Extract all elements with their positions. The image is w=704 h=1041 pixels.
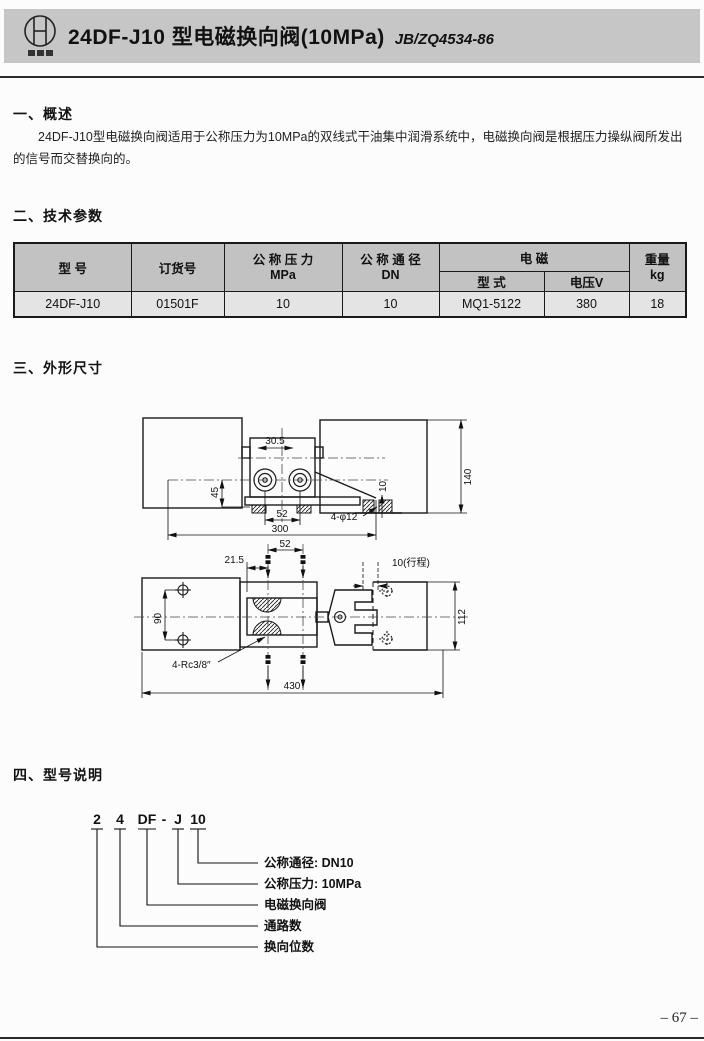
cell-solenoid-type: MQ1-5122 xyxy=(439,292,544,318)
front-dim-30-5: 30.5 xyxy=(265,436,285,447)
code-label-pressure: 公称压力: 10MPa xyxy=(264,876,362,891)
section-heading-parameters: 二、技术参数 xyxy=(13,206,103,226)
col-header-model: 型 号 xyxy=(14,243,131,292)
cell-pressure: 10 xyxy=(224,292,342,318)
header-rule xyxy=(0,76,704,78)
col-header-solenoid-type: 型 式 xyxy=(439,272,544,292)
section-heading-overview: 一、概述 xyxy=(13,104,73,124)
col-header-weight: 重量 kg xyxy=(629,243,686,292)
top-dim-430: 430 xyxy=(284,681,301,692)
code-label-valve-type: 电磁换向阀 xyxy=(264,897,327,912)
page-title: 24DF-J10 型电磁换向阀(10MPa) xyxy=(68,26,385,49)
code-label-positions: 换向位数 xyxy=(264,939,315,954)
top-thread-callout: 4-Rc3/8″ xyxy=(172,660,211,671)
col-header-solenoid: 电 磁 xyxy=(439,243,629,272)
front-dim-45: 45 xyxy=(210,486,221,498)
page-number: – 67 – xyxy=(661,1010,699,1027)
code-seg-ways: 4 xyxy=(116,811,124,827)
company-logo-icon xyxy=(18,12,62,60)
code-seg-type: DF xyxy=(138,811,157,827)
cell-voltage: 380 xyxy=(544,292,629,318)
parameters-table: 型 号 订货号 公 称 压 力 MPa 公 称 通 径 DN 电 磁 重量 kg… xyxy=(13,242,687,318)
col-header-pressure: 公 称 压 力 MPa xyxy=(224,243,342,292)
code-label-ways: 通路数 xyxy=(264,918,302,933)
top-dim-52: 52 xyxy=(279,540,291,550)
front-dim-52: 52 xyxy=(276,509,288,520)
front-hole-callout: 4-φ12 xyxy=(331,512,358,523)
code-seg-dash: - xyxy=(162,811,167,827)
code-seg-positions: 2 xyxy=(93,811,101,827)
document-page: 24DF-J10 型电磁换向阀(10MPa)JB/ZQ4534-86 一、概述 … xyxy=(0,0,704,1041)
cell-weight: 18 xyxy=(629,292,686,318)
cell-model: 24DF-J10 xyxy=(14,292,131,318)
bottom-rule xyxy=(0,1037,704,1039)
standard-number: JB/ZQ4534-86 xyxy=(395,31,494,48)
top-stroke-callout: 10(行程) xyxy=(392,556,430,569)
section-heading-dimensions: 三、外形尺寸 xyxy=(13,358,103,378)
cell-diameter: 10 xyxy=(342,292,439,318)
overview-paragraph: 24DF-J10型电磁换向阀适用于公称压力为10MPa的双线式干油集中润滑系统中… xyxy=(13,126,693,170)
col-header-order: 订货号 xyxy=(131,243,224,292)
header-bar: 24DF-J10 型电磁换向阀(10MPa)JB/ZQ4534-86 xyxy=(4,9,700,63)
front-view-drawing: 30.5 45 52 300 140 10 4-φ12 xyxy=(130,400,480,548)
front-dim-10: 10 xyxy=(378,480,389,492)
front-dim-300: 300 xyxy=(272,524,289,535)
section-heading-model-code: 四、型号说明 xyxy=(13,765,103,785)
code-label-diameter: 公称通径: DN10 xyxy=(264,855,354,870)
top-dim-21-5: 21.5 xyxy=(225,555,245,566)
table-row: 24DF-J10 01501F 10 10 MQ1-5122 380 18 xyxy=(14,292,686,318)
col-header-voltage: 电压V xyxy=(544,272,629,292)
top-view-drawing: 52 21.5 10(行程) 90 112 4-Rc3/8″ 430 xyxy=(130,540,475,712)
code-seg-diameter: 10 xyxy=(190,811,206,827)
top-dim-90: 90 xyxy=(153,612,164,624)
top-dim-112: 112 xyxy=(457,609,468,625)
front-dim-140: 140 xyxy=(463,468,474,485)
model-code-diagram: 2 4 DF - J 10 公称通径: DN10 公称压力: 10MPa 电磁换… xyxy=(80,800,500,965)
cell-order-no: 01501F xyxy=(131,292,224,318)
code-seg-pressure: J xyxy=(174,811,182,827)
col-header-diameter: 公 称 通 径 DN xyxy=(342,243,439,292)
